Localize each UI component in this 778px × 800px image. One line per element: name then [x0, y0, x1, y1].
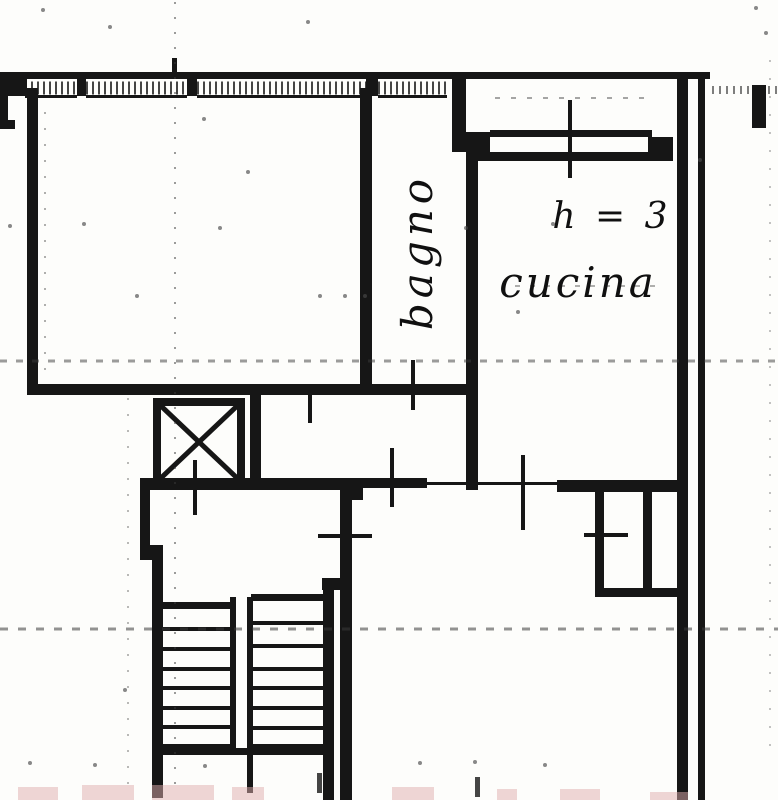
stair-tread	[163, 706, 232, 710]
wall	[352, 478, 363, 500]
wall	[0, 72, 710, 79]
wall	[0, 72, 8, 128]
door-opening-tick	[568, 100, 572, 178]
door-opening-tick	[172, 58, 177, 74]
closet-wall	[595, 588, 685, 597]
door-opening-tick	[308, 390, 312, 423]
stair-divider	[230, 597, 236, 753]
scan-smudge	[18, 785, 688, 800]
door-threshold	[427, 482, 557, 485]
balcony-wall	[452, 72, 466, 138]
stair-tread	[251, 706, 323, 710]
stair-tread	[251, 686, 323, 690]
wall	[27, 88, 38, 395]
door-opening-tick	[584, 533, 628, 537]
wall	[27, 384, 470, 395]
scanned-floor-plan: bagno h = 3 cucina	[0, 0, 778, 800]
room-bathroom-label: bagno	[393, 174, 442, 330]
door-opening-tick	[521, 455, 525, 530]
door-opening-tick	[318, 534, 372, 538]
stair-divider	[247, 597, 253, 793]
stair-tread	[251, 644, 323, 648]
room-kitchen-label: cucina	[499, 258, 657, 307]
stair-tread	[163, 647, 232, 651]
scan-mark	[317, 773, 322, 793]
wall	[698, 72, 705, 800]
door-opening-tick	[411, 360, 415, 410]
wall	[360, 88, 372, 388]
window-sill	[197, 95, 366, 98]
wall	[363, 478, 427, 488]
wall	[152, 558, 163, 798]
wall	[677, 72, 688, 800]
stair-tread	[163, 744, 232, 748]
wall	[477, 152, 673, 161]
kitchen-height-annotation: h = 3	[552, 196, 671, 237]
wall	[140, 545, 163, 560]
wall	[466, 150, 478, 490]
stair-tread	[251, 621, 323, 625]
closet-wall	[643, 483, 652, 590]
wall-pier	[187, 72, 197, 96]
stair-tread	[163, 725, 232, 729]
door-opening-tick	[390, 448, 394, 507]
wall	[557, 480, 688, 492]
elevator-shaft	[237, 398, 245, 488]
stair-tread	[251, 667, 323, 671]
wall	[140, 478, 363, 490]
stair-tread	[251, 744, 323, 748]
door-opening-tick	[193, 460, 197, 515]
scan-mark	[475, 777, 480, 797]
window-sill	[86, 95, 187, 98]
wall	[250, 393, 261, 483]
floor-plan-drawing: bagno h = 3 cucina	[0, 0, 778, 800]
stair-tread	[251, 726, 323, 730]
elevator-shaft	[153, 398, 161, 488]
balcony-wall	[452, 132, 490, 152]
stair-tread	[163, 667, 232, 671]
stair-tread	[251, 594, 323, 601]
stair-landing-edge	[163, 748, 323, 755]
stair-tread	[163, 686, 232, 690]
wall	[323, 588, 334, 800]
stair-tread	[163, 602, 232, 609]
balcony-wall	[648, 137, 673, 152]
window-sill	[378, 95, 447, 98]
wall-stub	[752, 85, 766, 128]
wall-pier	[77, 72, 86, 96]
elevator-shaft	[153, 398, 245, 406]
wall	[0, 120, 15, 129]
closet-wall	[595, 483, 604, 597]
